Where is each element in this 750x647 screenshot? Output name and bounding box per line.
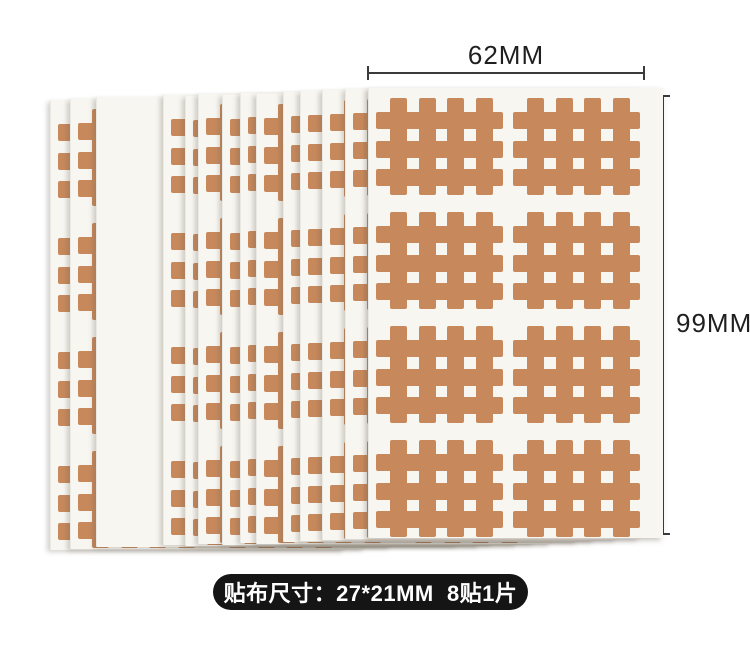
- width-measure-line: [368, 72, 644, 74]
- patch-horizontal-strip: [376, 511, 503, 528]
- patch-horizontal-strip: [513, 283, 640, 300]
- patch-horizontal-strip: [376, 255, 503, 272]
- patch-horizontal-strip: [376, 169, 503, 186]
- size-spec-badge: 贴布尺寸：27*21MM 8贴1片: [213, 574, 528, 610]
- cross-tape-patch: [376, 212, 503, 309]
- cross-tape-patch: [513, 212, 640, 309]
- cross-tape-patch: [376, 98, 503, 195]
- patch-horizontal-strip: [376, 454, 503, 471]
- cross-tape-patch: [513, 98, 640, 195]
- patch-horizontal-strip: [513, 255, 640, 272]
- patch-horizontal-strip: [376, 483, 503, 500]
- height-dimension-label: 99MM: [676, 308, 750, 339]
- patch-horizontal-strip: [376, 226, 503, 243]
- width-dimension-label: 62MM: [368, 40, 644, 71]
- patch-horizontal-strip: [513, 397, 640, 414]
- cross-tape-patch: [376, 326, 503, 423]
- patch-horizontal-strip: [513, 112, 640, 129]
- patch-horizontal-strip: [376, 397, 503, 414]
- size-spec-badge-text: 贴布尺寸：27*21MM 8贴1片: [224, 576, 518, 608]
- patch-horizontal-strip: [513, 169, 640, 186]
- cross-tape-patch: [513, 326, 640, 423]
- patch-horizontal-strip: [513, 340, 640, 357]
- cross-tape-patch: [376, 440, 503, 537]
- patch-horizontal-strip: [376, 340, 503, 357]
- cross-tape-patch: [513, 440, 640, 537]
- patch-horizontal-strip: [513, 141, 640, 158]
- product-photo: 62MM 99MM 贴布尺寸：27*21MM 8贴1片: [0, 0, 750, 647]
- patch-horizontal-strip: [376, 141, 503, 158]
- patch-horizontal-strip: [513, 454, 640, 471]
- patch-horizontal-strip: [376, 283, 503, 300]
- patch-horizontal-strip: [513, 483, 640, 500]
- patch-horizontal-strip: [513, 511, 640, 528]
- patch-horizontal-strip: [513, 226, 640, 243]
- patch-horizontal-strip: [513, 369, 640, 386]
- patch-horizontal-strip: [376, 369, 503, 386]
- tape-sheet-front: [368, 88, 663, 538]
- patch-horizontal-strip: [376, 112, 503, 129]
